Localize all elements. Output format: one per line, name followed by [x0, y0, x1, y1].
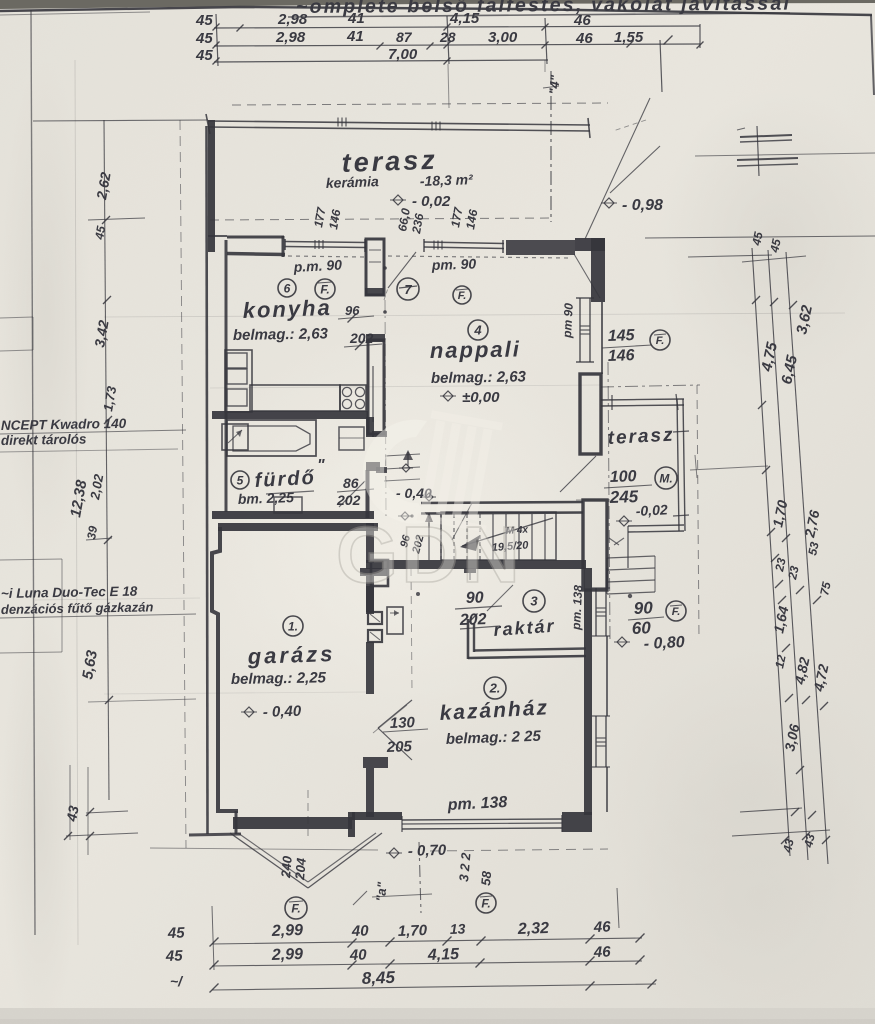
- svg-text:13: 13: [450, 920, 466, 937]
- svg-text:4: 4: [473, 323, 482, 338]
- svg-text:8,45: 8,45: [361, 968, 395, 988]
- svg-text:46: 46: [593, 918, 612, 936]
- svg-text:4,15: 4,15: [449, 10, 480, 27]
- svg-text:4,15: 4,15: [427, 946, 461, 964]
- svg-text:87: 87: [396, 29, 413, 45]
- svg-text:45: 45: [195, 12, 213, 29]
- svg-text:45: 45: [92, 225, 108, 242]
- svg-text:2,98: 2,98: [277, 11, 308, 28]
- svg-text:nappali: nappali: [430, 336, 521, 363]
- svg-text:F.: F.: [672, 606, 681, 618]
- svg-text:belmag.: 2,25: belmag.: 2,25: [231, 669, 327, 688]
- svg-text:pm. 138: pm. 138: [569, 584, 585, 631]
- svg-text:2,99: 2,99: [271, 946, 304, 964]
- svg-text:45: 45: [195, 30, 213, 47]
- svg-text:145: 145: [608, 327, 636, 345]
- svg-text:3 2 2: 3 2 2: [456, 851, 474, 882]
- svg-text:-0,02: -0,02: [635, 501, 668, 519]
- svg-text:5: 5: [237, 473, 244, 487]
- svg-text:- 0,40: - 0,40: [263, 703, 303, 721]
- svg-text:1,55: 1,55: [614, 29, 644, 46]
- svg-text:bm. 2,25: bm. 2,25: [238, 489, 295, 507]
- svg-text:belmag.: 2,63: belmag.: 2,63: [233, 325, 329, 344]
- svg-text:90: 90: [633, 598, 653, 618]
- svg-text:"4": "4": [546, 74, 563, 96]
- svg-text:2,32: 2,32: [517, 920, 550, 938]
- svg-text:- 0,70: - 0,70: [408, 842, 448, 860]
- svg-text:±0,00: ±0,00: [462, 389, 500, 406]
- svg-text:86: 86: [343, 475, 359, 491]
- svg-text:M.: M.: [659, 471, 672, 485]
- svg-text:konyha: konyha: [242, 295, 332, 323]
- svg-text:terasz: terasz: [607, 425, 675, 449]
- svg-text:F.: F.: [458, 290, 467, 302]
- svg-text:fürdő: fürdő: [254, 467, 316, 492]
- svg-text:45: 45: [167, 924, 186, 942]
- svg-text:202: 202: [459, 611, 487, 629]
- svg-text:146: 146: [608, 347, 635, 365]
- svg-text:41: 41: [346, 28, 364, 45]
- svg-text:pm 90: pm 90: [560, 302, 576, 339]
- svg-text:- 0,02: - 0,02: [412, 193, 451, 210]
- svg-text:130: 130: [390, 714, 416, 732]
- svg-text:NCEPT Kwadro 140: NCEPT Kwadro 140: [1, 416, 127, 433]
- svg-text:garázs: garázs: [246, 641, 336, 669]
- svg-text:~i Luna Duo-Tec E 18: ~i Luna Duo-Tec E 18: [1, 584, 138, 601]
- svg-text:46: 46: [593, 943, 612, 961]
- svg-text:3: 3: [530, 594, 538, 609]
- svg-text:1,70: 1,70: [398, 922, 428, 940]
- svg-text:39: 39: [84, 525, 100, 541]
- svg-text:pm. 90: pm. 90: [431, 255, 477, 273]
- svg-text:100: 100: [610, 468, 637, 486]
- svg-text:41: 41: [347, 10, 365, 27]
- svg-text:- 0,98: - 0,98: [622, 197, 663, 214]
- svg-text:1.: 1.: [288, 619, 298, 633]
- svg-text:2,98: 2,98: [275, 29, 306, 46]
- svg-text:belmag.: 2 25: belmag.: 2 25: [446, 728, 542, 748]
- svg-text:pm. 138: pm. 138: [446, 794, 507, 814]
- svg-text:40: 40: [351, 922, 370, 940]
- svg-text:": ": [317, 457, 325, 474]
- svg-text:~/: ~/: [170, 973, 184, 989]
- svg-text:GDN: GDN: [336, 510, 523, 599]
- svg-text:F.: F.: [481, 896, 490, 910]
- svg-text:204: 204: [292, 857, 309, 882]
- svg-text:3,00: 3,00: [488, 29, 518, 46]
- svg-text:2.: 2.: [489, 681, 501, 696]
- svg-text:58: 58: [478, 870, 494, 886]
- svg-text:40: 40: [349, 946, 368, 964]
- svg-text:45: 45: [165, 947, 184, 965]
- svg-text:6: 6: [284, 281, 291, 295]
- svg-text:belmag.: 2,63: belmag.: 2,63: [431, 368, 527, 387]
- svg-text:"a": "a": [373, 881, 390, 903]
- svg-text:45: 45: [195, 47, 213, 64]
- svg-text:p.m. 90: p.m. 90: [292, 256, 342, 275]
- svg-text:205: 205: [386, 738, 413, 756]
- svg-text:-18,3 m²: -18,3 m²: [420, 171, 474, 189]
- svg-text:F.: F.: [291, 901, 300, 915]
- svg-text:43: 43: [63, 804, 82, 823]
- svg-text:F.: F.: [656, 335, 665, 347]
- svg-text:2,99: 2,99: [271, 922, 304, 940]
- svg-text:7: 7: [404, 282, 412, 297]
- svg-text:kerámia: kerámia: [326, 173, 380, 191]
- svg-text:- 0,80: - 0,80: [643, 634, 685, 653]
